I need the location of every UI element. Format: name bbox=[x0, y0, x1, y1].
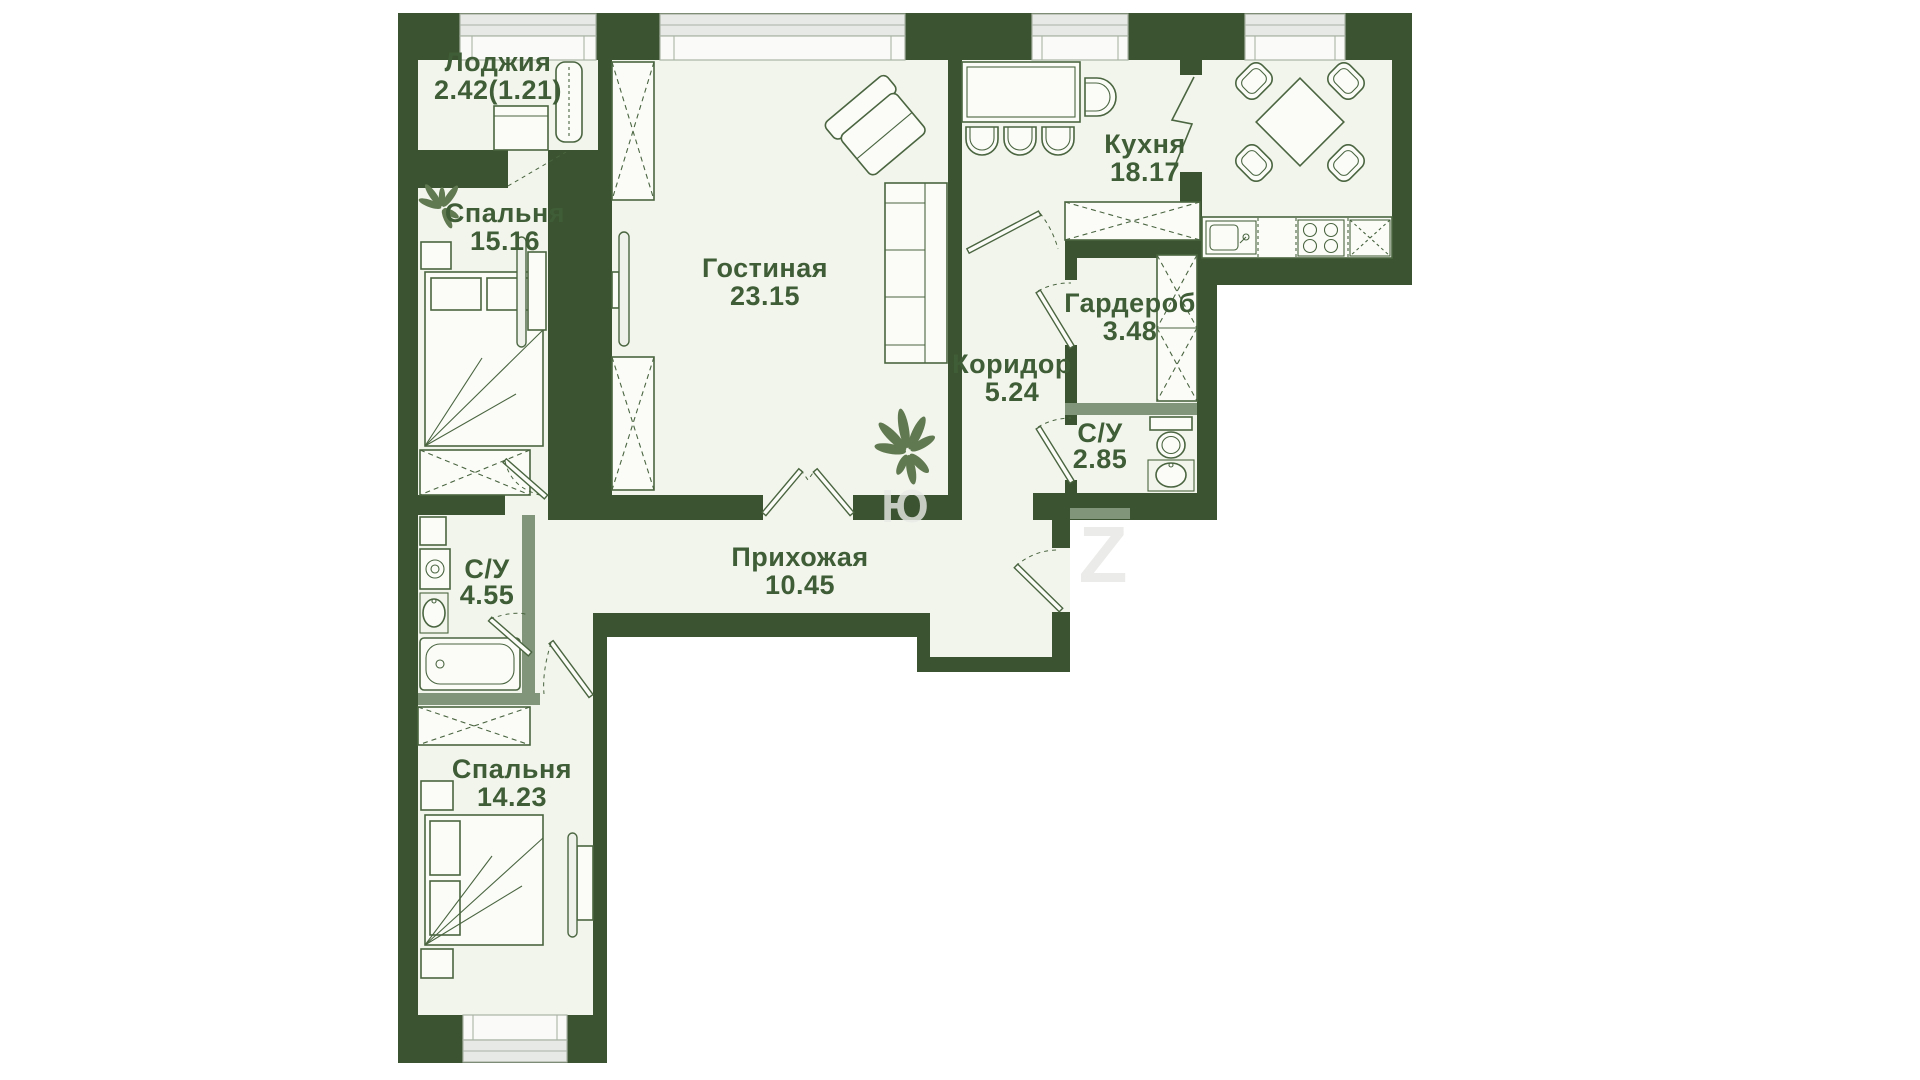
sofa bbox=[885, 183, 947, 363]
kitchen-cabinet bbox=[1065, 202, 1200, 240]
window bbox=[1032, 14, 1128, 60]
closet bbox=[612, 357, 654, 490]
room-label-bathroom-1: С/У 2.85 bbox=[1073, 418, 1128, 474]
bench bbox=[494, 106, 548, 150]
closet bbox=[612, 62, 654, 200]
room-name: Гостиная bbox=[702, 253, 828, 283]
nightstand bbox=[421, 781, 453, 810]
bar-counter bbox=[962, 62, 1080, 122]
room-name: Спальня bbox=[452, 754, 572, 784]
room-area: 10.45 bbox=[765, 570, 835, 600]
kitchen-counter bbox=[1202, 217, 1392, 258]
room-name: Лоджия bbox=[445, 47, 552, 77]
bar-stool bbox=[1004, 127, 1036, 155]
room-name: Гардероб bbox=[1064, 288, 1196, 318]
room-area: 2.42(1.21) bbox=[434, 75, 562, 105]
watermark-letter: Z bbox=[1079, 510, 1128, 599]
room-label-loggia: Лоджия 2.42(1.21) bbox=[434, 47, 562, 105]
window bbox=[1245, 14, 1345, 60]
room-area: 2.85 bbox=[1073, 444, 1128, 474]
wardrobe bbox=[1157, 255, 1197, 401]
bar-stool bbox=[966, 127, 998, 155]
room-name: Прихожая bbox=[731, 542, 868, 572]
window bbox=[660, 14, 905, 60]
room-area: 4.55 bbox=[460, 580, 515, 610]
wardrobe bbox=[418, 707, 530, 745]
room-name: Спальня bbox=[445, 198, 565, 228]
room-area: 3.48 bbox=[1103, 316, 1158, 346]
nightstand bbox=[421, 242, 451, 269]
bar-chair bbox=[1085, 78, 1116, 116]
floor-plan: Ю Z Лоджия 2.42(1.21) Спальня 15.16 Гост… bbox=[0, 0, 1920, 1080]
room-area: 18.17 bbox=[1110, 157, 1180, 187]
washing-machine bbox=[420, 549, 450, 589]
room-area: 14.23 bbox=[477, 782, 547, 812]
watermark-letter: Ю bbox=[881, 480, 928, 532]
room-area: 5.24 bbox=[985, 377, 1040, 407]
nightstand bbox=[421, 949, 453, 978]
room-name: Коридор bbox=[952, 349, 1072, 379]
room-label-kitchen: Кухня 18.17 bbox=[1104, 129, 1185, 187]
room-area: 23.15 bbox=[730, 281, 800, 311]
room-name: Кухня bbox=[1104, 129, 1185, 159]
double-bed bbox=[425, 815, 543, 945]
bar-stool bbox=[1042, 127, 1074, 155]
window bbox=[463, 1015, 567, 1062]
room-label-bathroom-2: С/У 4.55 bbox=[460, 554, 515, 610]
cabinet bbox=[420, 517, 446, 545]
room-area: 15.16 bbox=[470, 226, 540, 256]
bathtub bbox=[420, 638, 520, 690]
